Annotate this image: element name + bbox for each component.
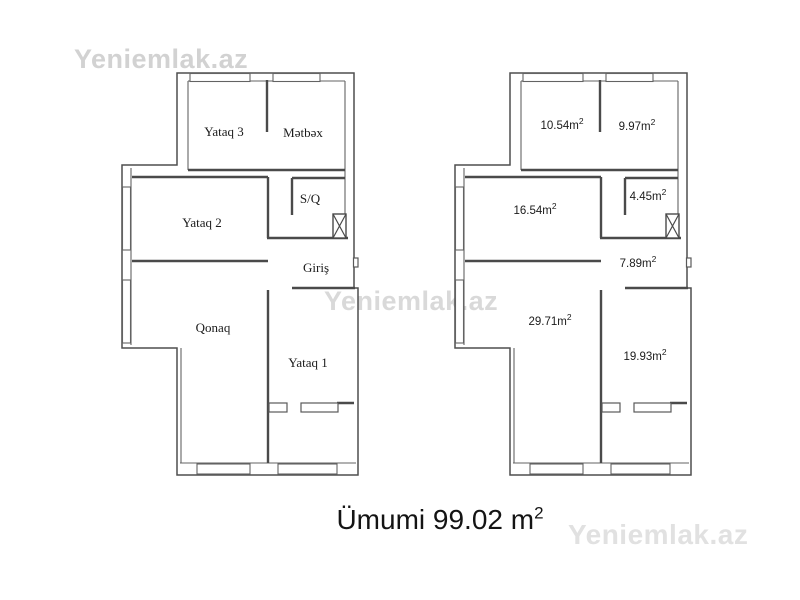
- floor-plan-right: 10.54m2 9.97m2 16.54m2 4.45m2 7.89m2 29.…: [453, 65, 695, 480]
- room-label-yataq-3: Yataq 3: [204, 124, 244, 139]
- total-area-text: Ümumi 99.02 m: [336, 504, 534, 535]
- room-label-yataq-1: Yataq 1: [288, 355, 328, 370]
- area-label-yataq-2: 16.54m2: [513, 201, 556, 217]
- floor-plan-left: Yataq 3 Mətbəx Yataq 2 S/Q Giriş Qonaq Y…: [120, 65, 362, 480]
- room-label-yataq-2: Yataq 2: [182, 215, 222, 230]
- area-label-yataq-3: 10.54m2: [540, 116, 583, 132]
- area-label-qonaq: 29.71m2: [528, 312, 571, 328]
- total-area-label: Ümumi 99.02 m2: [336, 504, 543, 536]
- area-label-s-q: 4.45m2: [630, 187, 667, 203]
- watermark-bottom-right: Yeniemlak.az: [568, 519, 748, 551]
- area-label-giris: 7.89m2: [620, 254, 657, 270]
- total-area-superscript: 2: [534, 504, 543, 523]
- plan-walls-right: [455, 73, 691, 475]
- room-label-qonaq: Qonaq: [196, 320, 231, 335]
- area-label-yataq-1: 19.93m2: [623, 347, 666, 363]
- room-label-metbex: Mətbəx: [283, 125, 323, 140]
- floorplan-page: { "watermarks": { "top_left": "Yeniemlak…: [0, 0, 800, 600]
- room-label-s-q: S/Q: [300, 191, 321, 206]
- room-label-giris: Giriş: [303, 260, 329, 275]
- area-label-metbex: 9.97m2: [619, 117, 656, 133]
